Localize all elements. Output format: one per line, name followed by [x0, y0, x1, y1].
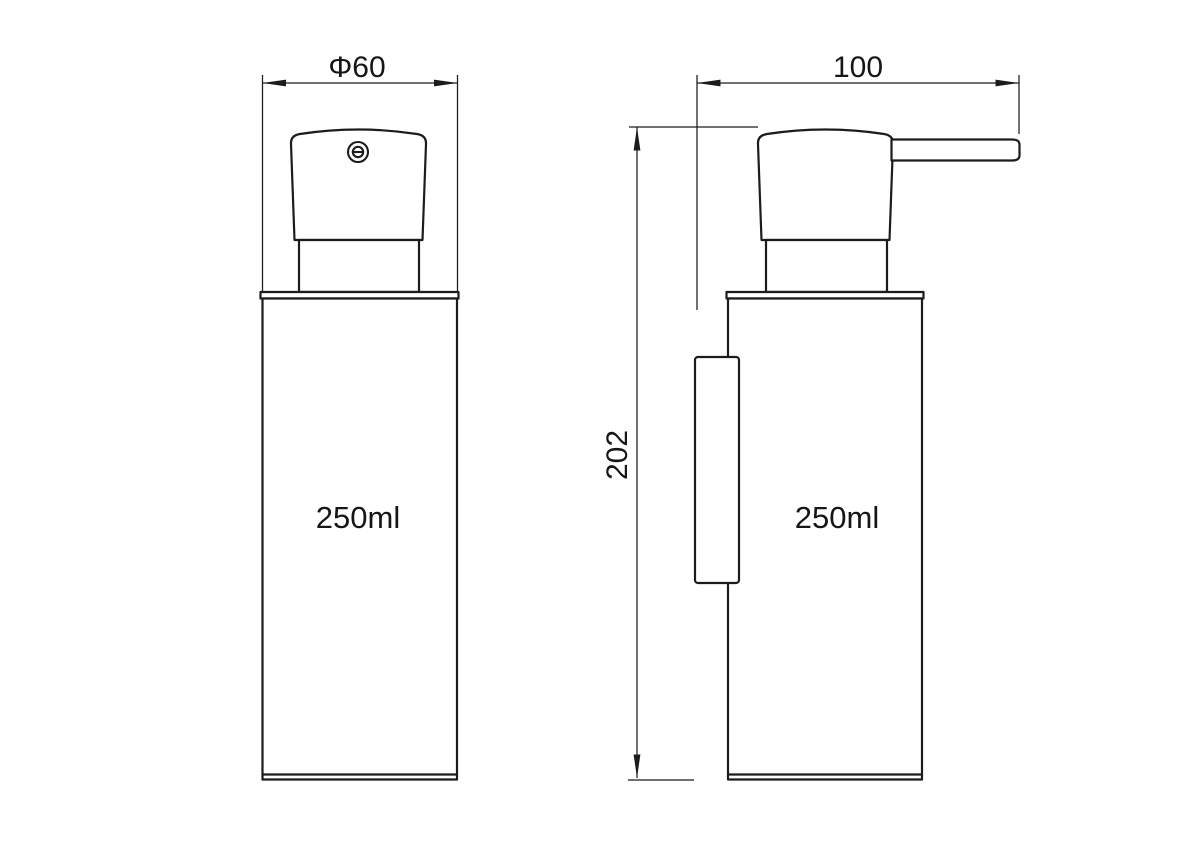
side-body [728, 299, 922, 780]
technical-drawing: Φ60 250ml [0, 0, 1200, 849]
side-spout [892, 140, 1020, 161]
side-pump-head [758, 130, 893, 241]
side-pump-neck [766, 240, 887, 292]
depth-dimension-label: 100 [833, 51, 883, 84]
arrowhead-right [434, 80, 458, 87]
front-volume-label: 250ml [316, 500, 400, 535]
drawing-svg: Φ60 250ml [0, 0, 1200, 849]
arrowhead-left [263, 80, 287, 87]
front-pump-neck [299, 240, 419, 292]
diameter-dimension-label: Φ60 [328, 51, 385, 84]
side-view: 100 202 [601, 51, 1020, 780]
front-body [263, 299, 458, 780]
arrowhead-left [697, 80, 721, 87]
height-dimension-label: 202 [601, 430, 634, 480]
wall-mount-bracket [695, 357, 739, 583]
arrowhead-right [996, 80, 1020, 87]
arrowhead-top [634, 127, 641, 151]
arrowhead-bottom [634, 755, 641, 779]
side-volume-label: 250ml [795, 500, 879, 535]
front-view: Φ60 250ml [261, 51, 459, 780]
